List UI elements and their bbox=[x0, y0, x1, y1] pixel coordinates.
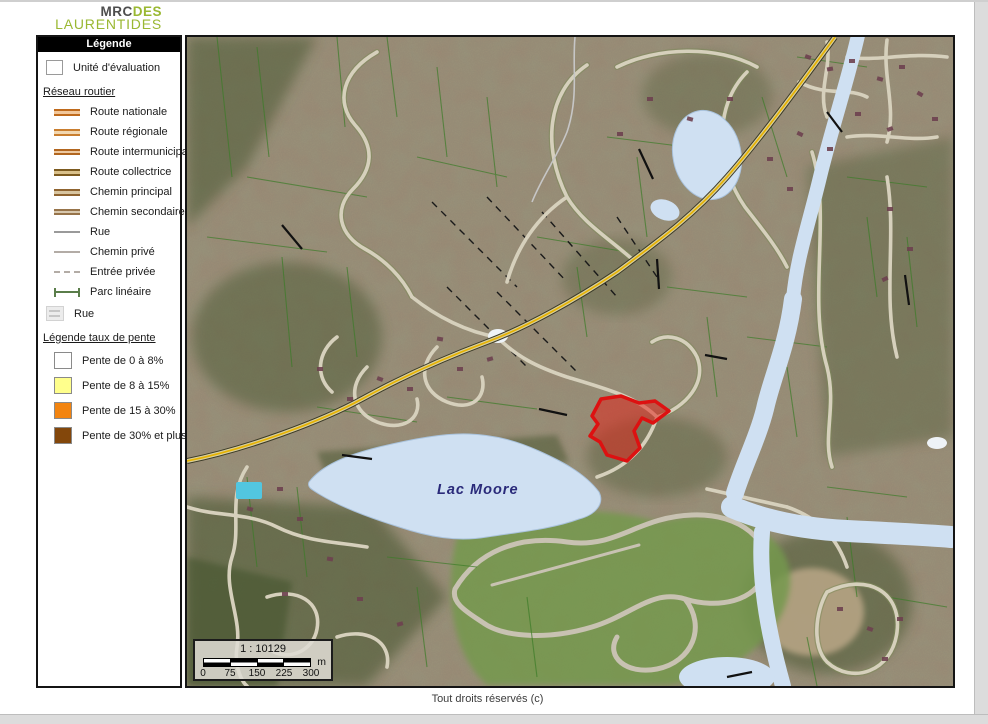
legend-item-pente-30-plus: Pente de 30% et plus bbox=[54, 427, 180, 444]
rue-layer-group-icon bbox=[46, 306, 64, 321]
map-viewport[interactable]: Lac Moore 1 : 10129 m 0 75 150 225 300 bbox=[185, 35, 955, 688]
entree-privee-dashed-line-icon bbox=[54, 271, 80, 273]
chemin-prive-line-icon bbox=[54, 251, 80, 253]
legend-item-chemin-secondaire: Chemin secondaire bbox=[54, 206, 180, 218]
lake-label: Lac Moore bbox=[437, 482, 519, 498]
legend-item-route-collectrice: Route collectrice bbox=[54, 166, 180, 178]
scale-bar-segments bbox=[203, 658, 311, 667]
legend-item-chemin-principal: Chemin principal bbox=[54, 186, 180, 198]
legend-item-route-regionale: Route régionale bbox=[54, 126, 180, 138]
slope-30-plus-swatch-icon bbox=[54, 427, 72, 444]
legend-section-taux-de-pente: Légende taux de pente bbox=[43, 332, 180, 344]
slope-0-8-swatch-icon bbox=[54, 352, 72, 369]
legend-title: Légende bbox=[38, 37, 180, 52]
legend-item-parc-lineaire: Parc linéaire bbox=[54, 286, 180, 298]
legend-item-entree-privee: Entrée privée bbox=[54, 266, 180, 278]
scale-ticks: 0 75 150 225 300 bbox=[203, 668, 311, 680]
chemin-principal-line-icon bbox=[54, 189, 80, 196]
legend-item-pente-15-30: Pente de 15 à 30% bbox=[54, 402, 180, 419]
route-collectrice-line-icon bbox=[54, 169, 80, 176]
legend-item-route-intermunicipale: Route intermunicipale bbox=[54, 146, 180, 158]
legend-item-rue: Rue bbox=[54, 226, 180, 238]
footer-copyright: Tout droits réservés (c) bbox=[0, 693, 975, 705]
public-beach-pool bbox=[236, 482, 262, 499]
aerial-map[interactable]: Lac Moore bbox=[187, 37, 953, 686]
right-clearing bbox=[927, 437, 947, 449]
route-intermunicipale-line-icon bbox=[54, 149, 80, 155]
scale-ratio: 1 : 10129 bbox=[195, 643, 331, 655]
legend-item-chemin-prive: Chemin privé bbox=[54, 246, 180, 258]
map-report-page: MRCDES LAURENTIDES Légende Unité d'évalu… bbox=[0, 0, 988, 724]
window-edge-right bbox=[974, 2, 988, 724]
legend-item-rue-group: Rue bbox=[46, 306, 180, 321]
slope-15-30-swatch-icon bbox=[54, 402, 72, 419]
legend-section-reseau-routier: Réseau routier bbox=[43, 86, 180, 98]
mrc-laurentides-logo: MRCDES LAURENTIDES bbox=[18, 5, 162, 31]
scale-bar: 1 : 10129 m 0 75 150 225 300 bbox=[193, 639, 333, 681]
route-regionale-line-icon bbox=[54, 129, 80, 136]
evaluation-unit-swatch-icon bbox=[46, 60, 63, 75]
legend-item-route-nationale: Route nationale bbox=[54, 106, 180, 118]
legend-item-unite-evaluation: Unité d'évaluation bbox=[46, 60, 180, 75]
rue-line-icon bbox=[54, 231, 80, 233]
slope-8-15-swatch-icon bbox=[54, 377, 72, 394]
legend-item-pente-8-15: Pente de 8 à 15% bbox=[54, 377, 180, 394]
legend-panel: Légende Unité d'évaluation Réseau routie… bbox=[36, 35, 182, 688]
logo-laurentides-text: LAURENTIDES bbox=[18, 18, 162, 31]
route-nationale-line-icon bbox=[54, 109, 80, 116]
scale-unit: m bbox=[317, 656, 326, 668]
chemin-secondaire-line-icon bbox=[54, 209, 80, 215]
window-edge-bottom bbox=[0, 714, 988, 724]
legend-item-pente-0-8: Pente de 0 à 8% bbox=[54, 352, 180, 369]
parc-lineaire-line-icon bbox=[54, 288, 80, 297]
